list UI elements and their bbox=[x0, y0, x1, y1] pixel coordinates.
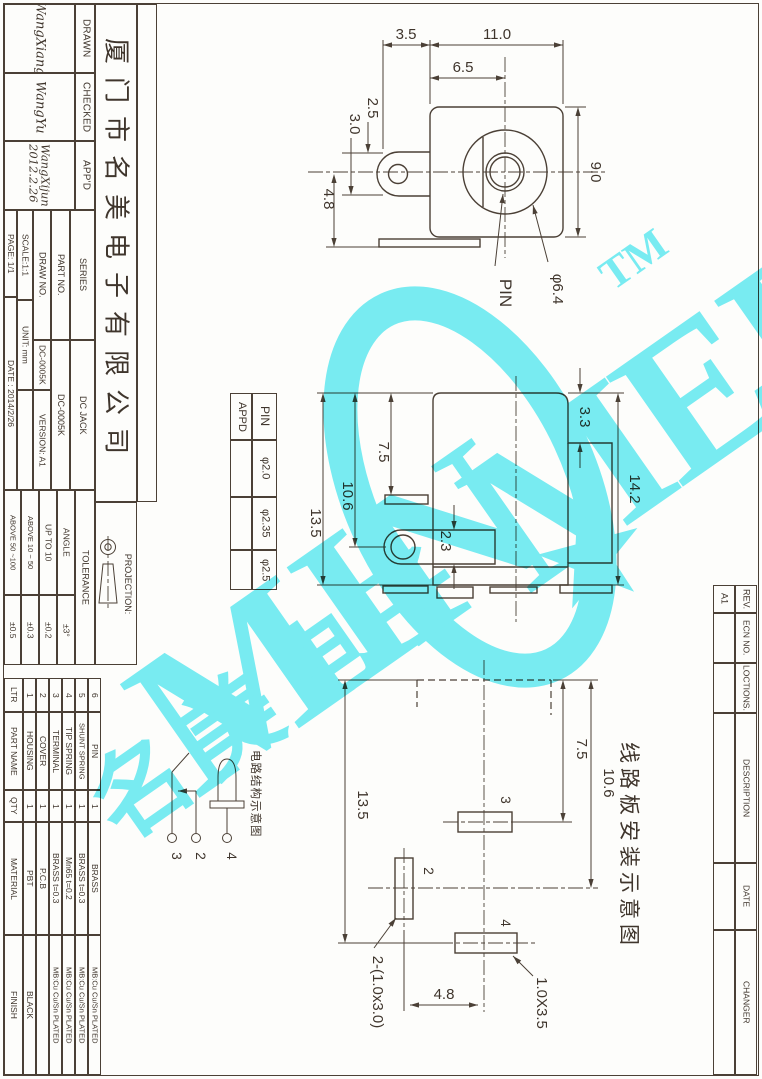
pcb-layout-title: 线路板安装示意图 bbox=[617, 742, 639, 950]
dim-3_5: 3.5 bbox=[396, 26, 417, 43]
pcb-dim-10_6: 10.6 bbox=[600, 768, 617, 797]
mount-flange bbox=[379, 239, 480, 247]
pad-label-3: 3 bbox=[498, 796, 513, 804]
drawing-sheet: WangXiang DRAWN WangYu CHECKED WangXijun… bbox=[0, 0, 762, 1079]
plug-symbol bbox=[218, 759, 236, 801]
pcb-dim-slot4: 1.0X3.5 bbox=[533, 977, 550, 1029]
pcb-dim-13_5: 13.5 bbox=[354, 790, 371, 819]
dim-13_5: 13.5 bbox=[307, 508, 324, 537]
circuit-schematic: 3 2 4 bbox=[168, 753, 245, 860]
dim-7_5: 7.5 bbox=[375, 442, 392, 463]
dim-10_6: 10.6 bbox=[339, 481, 356, 510]
dim-2_5: 2.5 bbox=[364, 98, 381, 119]
dim-14_2: 14.2 bbox=[626, 474, 643, 503]
pcb-layout-view: 7.5 10.6 13.5 4.8 2-(1.0x3.0) 1.0X3.5 3 … bbox=[338, 660, 617, 1029]
schematic-pin-2: 2 bbox=[193, 852, 208, 860]
dim-3_3: 3.3 bbox=[576, 407, 593, 428]
projection-symbol bbox=[99, 536, 117, 610]
dim-2_3: 2.3 bbox=[437, 531, 454, 552]
dim-11_0: 11.0 bbox=[483, 26, 511, 43]
pad-label-2: 2 bbox=[421, 867, 436, 875]
pin-callout: PIN bbox=[496, 279, 515, 307]
schematic-pin-4: 4 bbox=[224, 852, 239, 860]
dim-3_0: 3.0 bbox=[346, 114, 363, 135]
terminal-lug bbox=[377, 152, 430, 196]
schematic-pin-3: 3 bbox=[169, 852, 184, 860]
dim-9_0: 9.0 bbox=[587, 162, 604, 183]
dim-6_5: 6.5 bbox=[453, 59, 474, 76]
pcb-dim-slot2: 2-(1.0x3.0) bbox=[369, 956, 386, 1029]
dim-dia6_4: φ6.4 bbox=[549, 274, 566, 305]
dimension-arrows bbox=[178, 42, 621, 1007]
schematic-caption: 电路结构示意图 bbox=[249, 750, 261, 838]
pcb-dim-7_5: 7.5 bbox=[573, 739, 590, 760]
front-view: 3.5 11.0 6.5 2.5 3.0 4.8 9.0 φ6.4 PIN bbox=[308, 26, 608, 307]
side-view: 7.5 10.6 13.5 2.3 3.3 14.2 bbox=[307, 368, 643, 622]
drawing-canvas: 3.5 11.0 6.5 2.5 3.0 4.8 9.0 φ6.4 PIN bbox=[0, 0, 762, 1079]
dim-4_8: 4.8 bbox=[320, 189, 337, 210]
shunt-terminal bbox=[385, 495, 428, 504]
pcb-dim-4_8: 4.8 bbox=[434, 986, 455, 1003]
pad-label-4: 4 bbox=[498, 919, 513, 927]
